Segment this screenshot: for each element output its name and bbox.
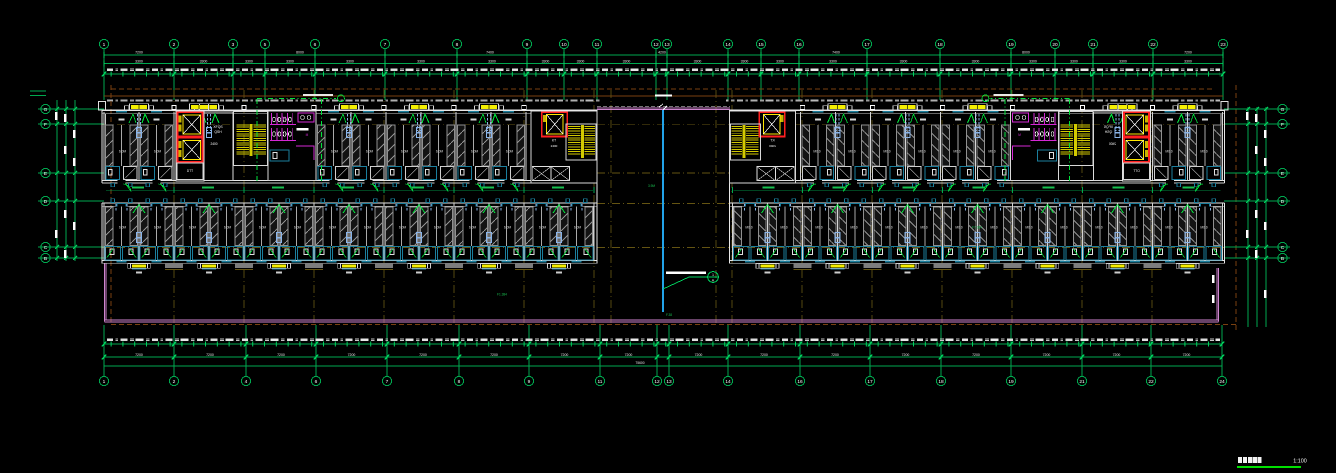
svg-text:7200: 7200	[135, 353, 143, 357]
svg-text:7200: 7200	[1113, 353, 1121, 357]
svg-text:6: 6	[315, 379, 318, 385]
svg-text:1: 1	[103, 42, 106, 48]
svg-text:D: D	[1281, 199, 1285, 205]
svg-text:2: 2	[173, 379, 176, 385]
svg-text:14: 14	[725, 42, 731, 48]
svg-text:6.0M: 6.0M	[259, 225, 267, 229]
svg-text:6.0M: 6.0M	[539, 225, 547, 229]
svg-text:W: W	[282, 116, 285, 120]
svg-text:C: C	[44, 245, 48, 251]
svg-text:DTT: DTT	[187, 169, 193, 173]
svg-text:3300: 3300	[972, 60, 980, 64]
svg-text:12: 12	[654, 379, 660, 385]
svg-text:3300: 3300	[900, 60, 908, 64]
svg-text:16: 16	[796, 42, 802, 48]
svg-text:QSH: QSH	[214, 130, 222, 134]
svg-text:3300: 3300	[1070, 60, 1078, 64]
svg-text:3300: 3300	[1029, 60, 1037, 64]
svg-text:3300: 3300	[417, 60, 425, 64]
svg-text:3300: 3300	[135, 60, 143, 64]
svg-text:F.38: F.38	[666, 313, 672, 317]
svg-text:7200: 7200	[277, 353, 285, 357]
svg-text:3300: 3300	[1184, 60, 1192, 64]
svg-text:7200: 7200	[831, 353, 839, 357]
svg-text:7: 7	[386, 379, 389, 385]
svg-text:3300: 3300	[200, 60, 208, 64]
svg-text:B: B	[1281, 256, 1284, 262]
svg-text:7200: 7200	[490, 353, 498, 357]
svg-text:7200: 7200	[561, 353, 569, 357]
svg-text:6.0M: 6.0M	[189, 225, 197, 229]
svg-text:8000: 8000	[1022, 51, 1030, 55]
svg-text:3300: 3300	[245, 60, 253, 64]
svg-text:6.0M: 6.0M	[574, 225, 582, 229]
svg-text:13: 13	[664, 42, 670, 48]
svg-text:6.0M: 6.0M	[154, 149, 162, 153]
svg-text:3300: 3300	[741, 60, 749, 64]
svg-text:3: 3	[232, 42, 235, 48]
svg-text:18: 18	[938, 379, 944, 385]
svg-text:6.0M: 6.0M	[119, 225, 127, 229]
svg-text:23: 23	[1220, 42, 1226, 48]
svg-text:7200: 7200	[760, 353, 768, 357]
svg-text:8: 8	[456, 42, 459, 48]
svg-text:7200: 7200	[695, 353, 703, 357]
svg-text:F: F	[1281, 122, 1284, 128]
svg-text:F1.384: F1.384	[497, 293, 507, 297]
svg-text:3300: 3300	[694, 60, 702, 64]
svg-text:3300: 3300	[829, 60, 837, 64]
svg-text:7200: 7200	[135, 51, 143, 55]
svg-text:2400: 2400	[210, 142, 217, 146]
svg-text:9: 9	[526, 42, 529, 48]
svg-text:6.0M: 6.0M	[154, 225, 162, 229]
svg-text:15: 15	[758, 42, 764, 48]
svg-text:3300: 3300	[488, 60, 496, 64]
svg-text:11: 11	[595, 42, 600, 48]
svg-text:3300: 3300	[346, 60, 354, 64]
svg-text:6.0M: 6.0M	[224, 225, 232, 229]
svg-text:7200: 7200	[972, 353, 980, 357]
svg-text:22: 22	[1148, 379, 1154, 385]
svg-text:6.0M: 6.0M	[504, 225, 512, 229]
svg-text:C: C	[1281, 245, 1285, 251]
svg-text:75600: 75600	[635, 361, 644, 365]
svg-text:11: 11	[598, 379, 603, 385]
svg-text:13: 13	[666, 379, 672, 385]
svg-text:1:100: 1:100	[1293, 459, 1307, 465]
svg-text:22: 22	[1150, 42, 1156, 48]
svg-text:7200: 7200	[419, 353, 427, 357]
svg-text:20: 20	[1052, 42, 1058, 48]
svg-text:3300: 3300	[286, 60, 294, 64]
svg-text:7200: 7200	[206, 353, 214, 357]
svg-text:2: 2	[173, 42, 176, 48]
svg-text:24: 24	[1219, 379, 1225, 385]
svg-text:7200: 7200	[1043, 353, 1051, 357]
svg-text:G: G	[44, 107, 48, 113]
svg-text:18: 18	[937, 42, 943, 48]
svg-text:6.0M: 6.0M	[399, 225, 407, 229]
svg-text:6.0M: 6.0M	[366, 149, 374, 153]
svg-text:3.9M: 3.9M	[648, 184, 655, 188]
svg-text:7400: 7400	[486, 51, 494, 55]
svg-text:21: 21	[1079, 379, 1085, 385]
svg-text:14: 14	[725, 379, 731, 385]
svg-text:4200: 4200	[658, 51, 666, 55]
svg-text:3300: 3300	[776, 60, 784, 64]
svg-text:6.0M: 6.0M	[401, 149, 409, 153]
svg-text:12: 12	[653, 42, 659, 48]
svg-text:E: E	[44, 171, 47, 177]
svg-text:7200: 7200	[902, 353, 910, 357]
svg-text:F7.384: F7.384	[972, 226, 982, 230]
svg-text:XFQS: XFQS	[213, 125, 223, 129]
svg-text:M: M	[306, 133, 309, 137]
svg-text:3300: 3300	[542, 60, 550, 64]
svg-text:6.0M: 6.0M	[434, 225, 442, 229]
svg-text:E: E	[1281, 171, 1284, 177]
svg-text:4: 4	[245, 379, 248, 385]
svg-text:F: F	[44, 122, 47, 128]
svg-text:19: 19	[1008, 42, 1014, 48]
svg-text:7400: 7400	[832, 51, 840, 55]
svg-text:7: 7	[384, 42, 387, 48]
svg-text:7200: 7200	[625, 353, 633, 357]
svg-text:3300: 3300	[623, 60, 631, 64]
svg-text:KT: KT	[552, 139, 556, 143]
svg-text:6.0M: 6.0M	[471, 149, 479, 153]
svg-text:17: 17	[864, 42, 870, 48]
svg-text:6.0M: 6.0M	[506, 149, 514, 153]
svg-text:6.0M: 6.0M	[329, 225, 337, 229]
svg-text:8: 8	[458, 379, 461, 385]
svg-text:16: 16	[797, 379, 803, 385]
svg-text:3300: 3300	[577, 60, 585, 64]
svg-text:5: 5	[264, 42, 267, 48]
svg-text:17: 17	[867, 379, 873, 385]
svg-text:3300: 3300	[1119, 60, 1127, 64]
svg-text:D: D	[44, 199, 48, 205]
svg-text:21: 21	[1090, 42, 1096, 48]
svg-text:6.0M: 6.0M	[436, 149, 444, 153]
svg-text:6: 6	[314, 42, 317, 48]
svg-text:6.0M: 6.0M	[469, 225, 477, 229]
svg-text:7200: 7200	[1184, 51, 1192, 55]
svg-text:6.0M: 6.0M	[119, 149, 127, 153]
svg-text:6.0M: 6.0M	[294, 225, 302, 229]
svg-text:8000: 8000	[296, 51, 304, 55]
svg-text:9: 9	[528, 379, 531, 385]
svg-text:1: 1	[103, 379, 106, 385]
svg-text:G: G	[1281, 107, 1285, 113]
svg-text:7200: 7200	[1183, 353, 1191, 357]
svg-text:6.0M: 6.0M	[364, 225, 372, 229]
svg-text:7200: 7200	[348, 353, 356, 357]
svg-text:1: 1	[712, 273, 714, 277]
svg-text:B: B	[44, 256, 47, 262]
svg-text:10: 10	[561, 42, 567, 48]
svg-text:19: 19	[1008, 379, 1014, 385]
svg-text:6.0M: 6.0M	[331, 149, 339, 153]
svg-text:2400: 2400	[551, 144, 558, 148]
